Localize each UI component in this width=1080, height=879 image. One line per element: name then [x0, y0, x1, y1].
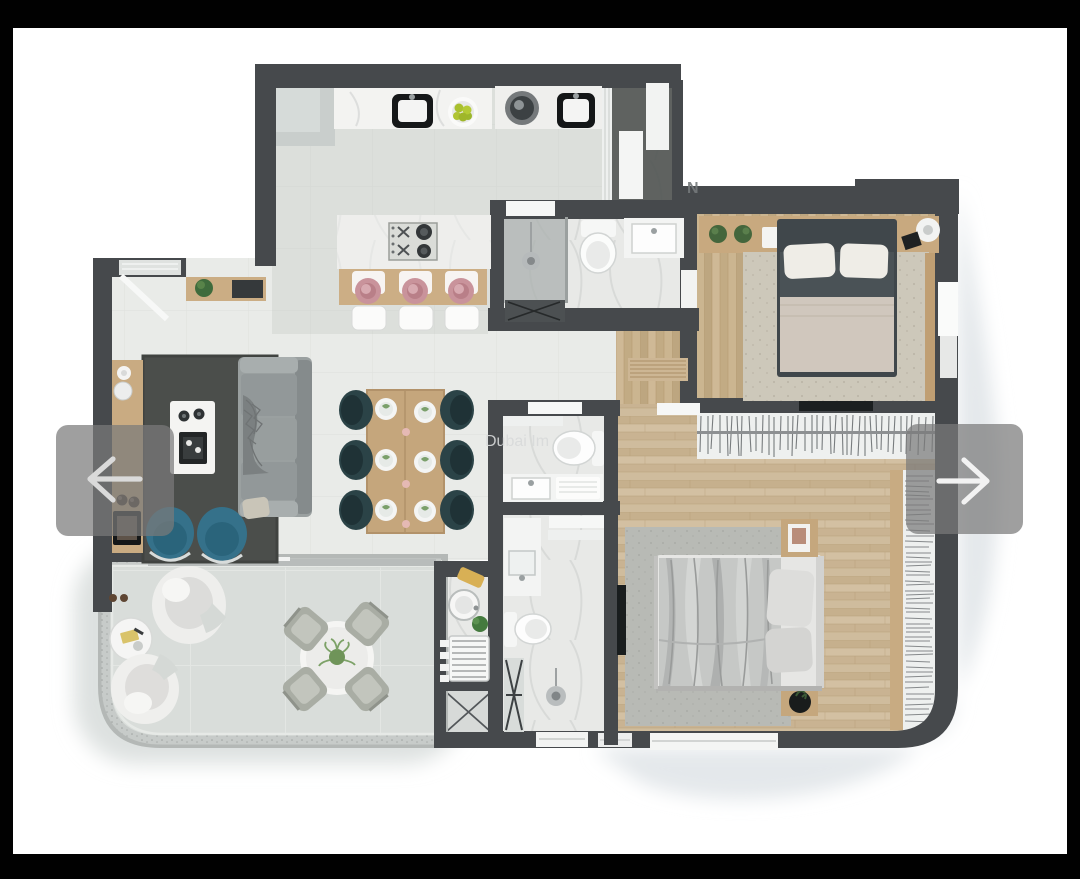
- svg-text:N: N: [687, 180, 699, 197]
- svg-text:Dubai Im: Dubai Im: [485, 433, 549, 450]
